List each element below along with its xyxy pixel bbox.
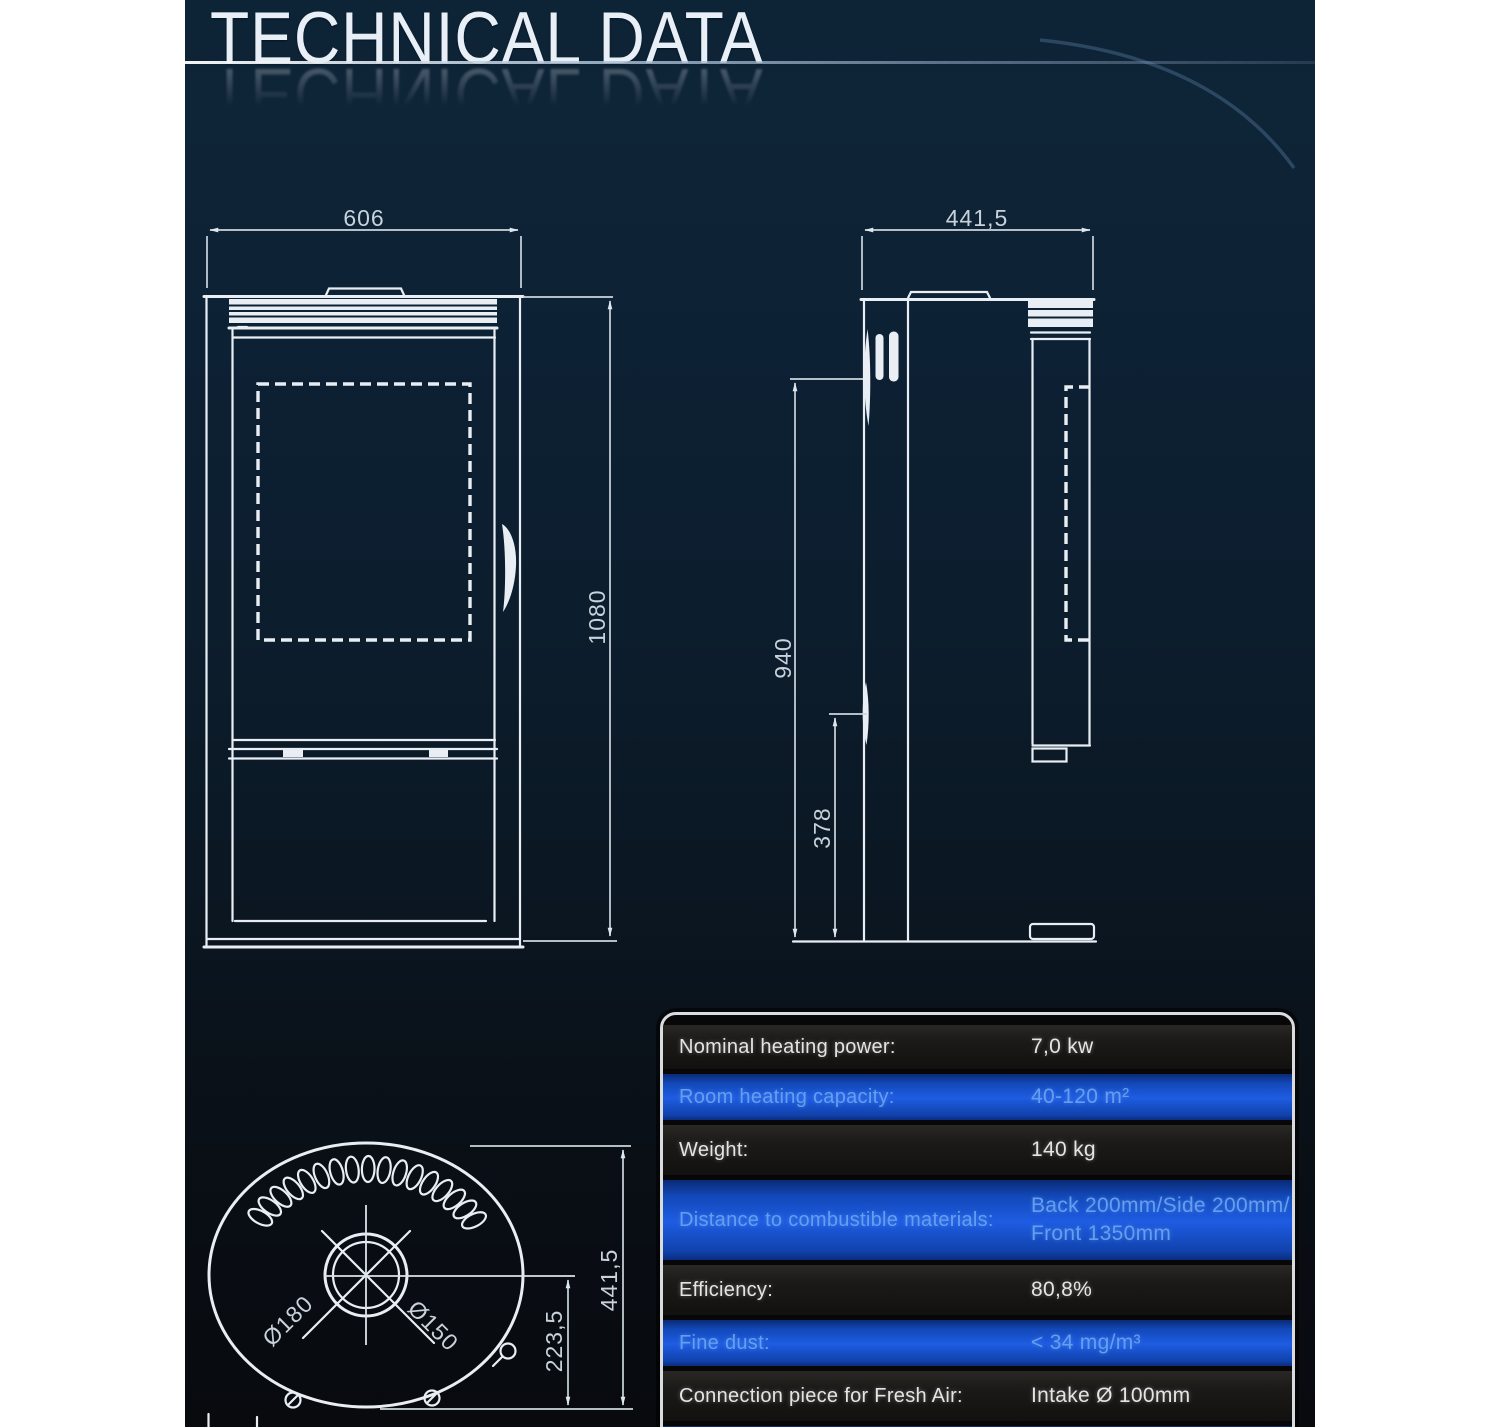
top-view-drawing: Ø180 Ø150 441,5 223,5 <box>209 1143 634 1427</box>
spec-row-fresh-air-connection: Connection piece for Fresh Air: Intake Ø… <box>663 1371 1292 1421</box>
spec-value: 40-120 m² <box>1031 1083 1292 1111</box>
spec-value: 140 kg <box>1031 1136 1292 1164</box>
door-glass-outline <box>258 384 470 640</box>
dim-side-handle-height: 378 <box>809 807 835 848</box>
spec-value: 7,0 kw <box>1031 1033 1292 1061</box>
dim-flue-outer: Ø180 <box>257 1290 318 1351</box>
content-area: TECHNICAL DATA TECHNICAL DATA 606 <box>185 0 1315 1427</box>
spec-row-distance-combustible: Distance to combustible materials: Back … <box>663 1180 1292 1260</box>
spec-value: < 34 mg/m³ <box>1031 1329 1292 1357</box>
swoosh-curve <box>1040 40 1294 168</box>
spec-row-efficiency: Efficiency: 80,8% <box>663 1265 1292 1315</box>
dim-side-body-height: 940 <box>770 637 796 678</box>
front-door-handle <box>502 524 516 612</box>
spec-row-fine-dust: Fine dust: < 34 mg/m³ <box>663 1320 1292 1366</box>
spec-label: Connection piece for Fresh Air: <box>663 1385 1031 1408</box>
dim-front-height: 1080 <box>584 589 610 644</box>
dim-top-depth: 441,5 <box>596 1249 622 1312</box>
spec-row-nominal-heating-power: Nominal heating power: 7,0 kw <box>663 1025 1292 1069</box>
front-view-drawing: 606 <box>204 205 617 947</box>
vent-slots <box>246 1156 489 1232</box>
spec-value: 80,8% <box>1031 1276 1292 1304</box>
dim-side-depth: 441,5 <box>946 205 1009 231</box>
datasheet-page: TECHNICAL DATA TECHNICAL DATA 606 <box>0 0 1500 1427</box>
air-control-lever <box>864 329 870 426</box>
dim-flue-inner: Ø150 <box>403 1295 464 1356</box>
spec-value: Intake Ø 100mm <box>1031 1382 1292 1410</box>
spec-label: Room heating capacity: <box>663 1086 1031 1109</box>
spec-label: Fine dust: <box>663 1332 1031 1355</box>
dim-front-width: 606 <box>343 205 384 231</box>
spec-label: Distance to combustible materials: <box>663 1209 1031 1232</box>
spec-table: Nominal heating power: 7,0 kw Room heati… <box>660 1012 1295 1427</box>
spec-label: Weight: <box>663 1139 1031 1162</box>
side-view-drawing: 441,5 <box>770 205 1096 942</box>
spec-value: Back 200mm/Side 200mm/ Front 1350mm <box>1031 1192 1292 1249</box>
flue-duct-outline <box>1066 387 1090 640</box>
dim-top-center-offset: 223,5 <box>541 1310 567 1373</box>
spec-row-weight: Weight: 140 kg <box>663 1125 1292 1175</box>
spec-label: Nominal heating power: <box>663 1036 1031 1059</box>
spec-label: Efficiency: <box>663 1279 1031 1302</box>
spec-row-room-heating-capacity: Room heating capacity: 40-120 m² <box>663 1074 1292 1120</box>
